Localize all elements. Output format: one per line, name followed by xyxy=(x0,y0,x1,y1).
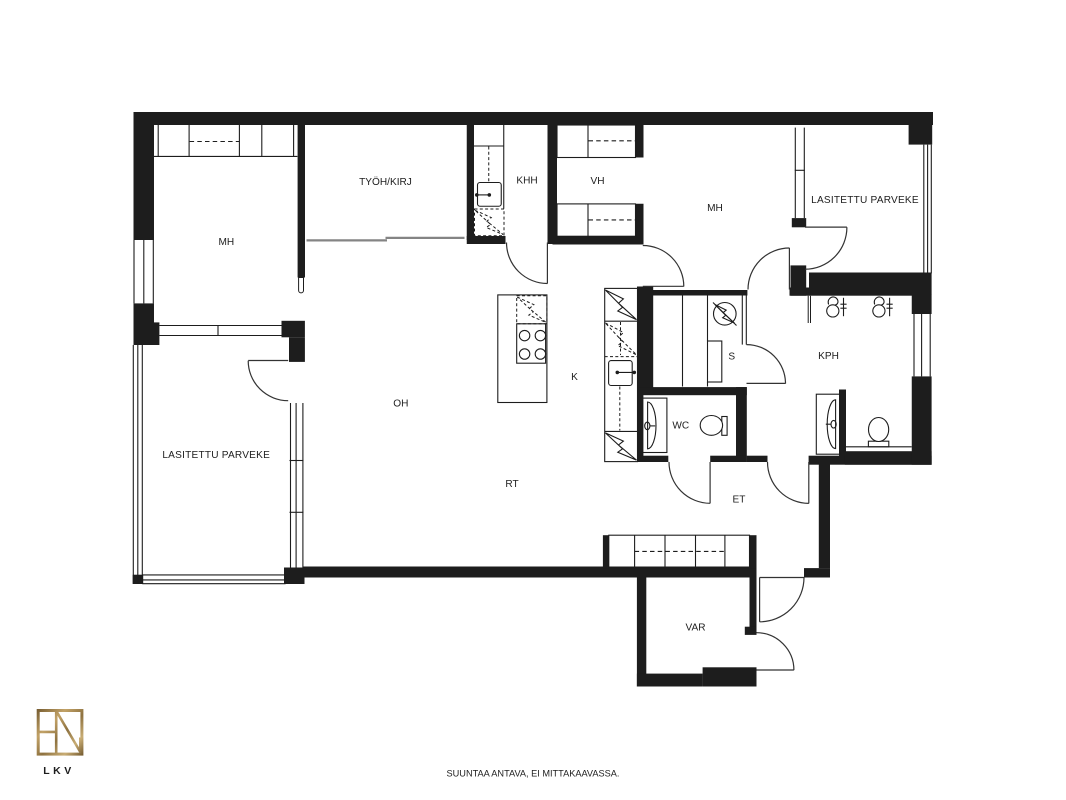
svg-text:RT: RT xyxy=(505,479,518,490)
svg-text:KPH: KPH xyxy=(818,351,839,362)
svg-text:VAR: VAR xyxy=(685,623,705,634)
svg-text:LASITETTU PARVEKE: LASITETTU PARVEKE xyxy=(811,195,919,206)
svg-text:LASITETTU PARVEKE: LASITETTU PARVEKE xyxy=(162,450,270,461)
svg-text:VH: VH xyxy=(590,176,604,187)
svg-text:MH: MH xyxy=(707,203,723,214)
svg-text:SUUNTAA ANTAVA, EI MITTAKAAVAS: SUUNTAA ANTAVA, EI MITTAKAAVASSA. xyxy=(447,768,620,778)
svg-text:MH: MH xyxy=(218,237,234,248)
svg-text:OH: OH xyxy=(393,399,408,410)
svg-text:K: K xyxy=(571,372,578,383)
svg-text:S: S xyxy=(728,352,735,363)
svg-text:ET: ET xyxy=(733,495,746,506)
svg-text:LKV: LKV xyxy=(43,765,75,777)
svg-text:TYÖH/KIRJ: TYÖH/KIRJ xyxy=(359,176,412,188)
svg-text:KHH: KHH xyxy=(516,176,537,187)
svg-text:WC: WC xyxy=(672,421,689,432)
